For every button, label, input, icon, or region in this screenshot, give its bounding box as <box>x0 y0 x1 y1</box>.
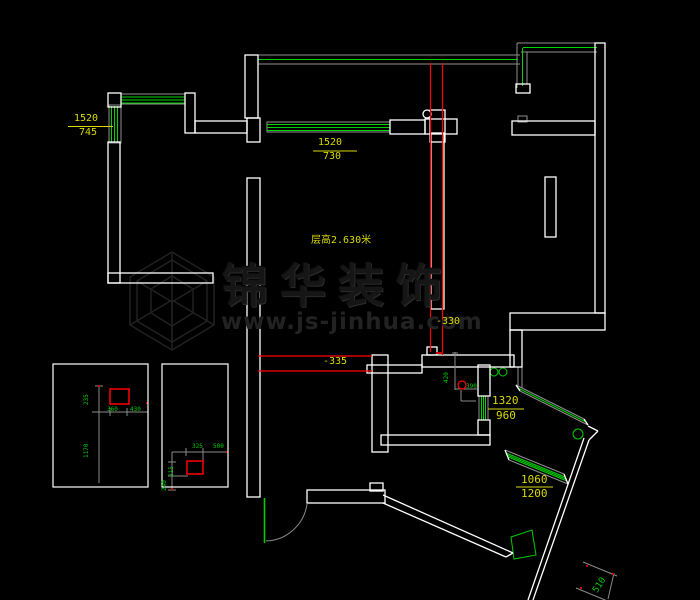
box2-dim-240: 240 <box>162 480 168 491</box>
detail-box-1 <box>53 364 148 487</box>
box2-dim-500: 500 <box>213 444 224 450</box>
box1-dim-430: 430 <box>130 407 141 413</box>
red-tick-dots <box>98 352 614 589</box>
bath-dim-420: 420 <box>444 372 450 383</box>
watermark-cube-logo-icon <box>130 252 214 350</box>
label-window-top-main: 1520 <box>318 138 342 148</box>
box2-dim-325: 325 <box>192 444 203 450</box>
box1-dim-1170: 1170 <box>84 444 90 458</box>
label-bay-window-main: 1060 <box>521 475 548 485</box>
box2-dim-215: 215 <box>169 466 175 477</box>
label-window-top-sub: 730 <box>323 152 341 162</box>
bath-dim-390: 390 <box>466 384 477 390</box>
box1-dim-235: 235 <box>84 394 90 405</box>
detail-boxes <box>53 364 228 487</box>
watermark-brand-text: 锦华装饰 <box>222 262 454 310</box>
label-window-left-main: 1520 <box>74 114 98 124</box>
label-window-right-sub: 960 <box>496 411 516 421</box>
label-level-335: -335 <box>323 357 347 367</box>
floor-plan-canvas: 锦华装饰 www.js-jinhua.com 1520 745 1520 730… <box>0 0 700 600</box>
label-window-left-sub: 745 <box>79 128 97 138</box>
label-window-right-main: 1320 <box>492 396 519 406</box>
box1-dim-360: 360 <box>107 407 118 413</box>
label-level-330: -330 <box>436 317 460 327</box>
label-ceiling-height: 层高2.630米 <box>311 236 371 246</box>
door-swing-arc <box>266 504 307 541</box>
label-bay-window-sub: 1200 <box>521 489 548 499</box>
